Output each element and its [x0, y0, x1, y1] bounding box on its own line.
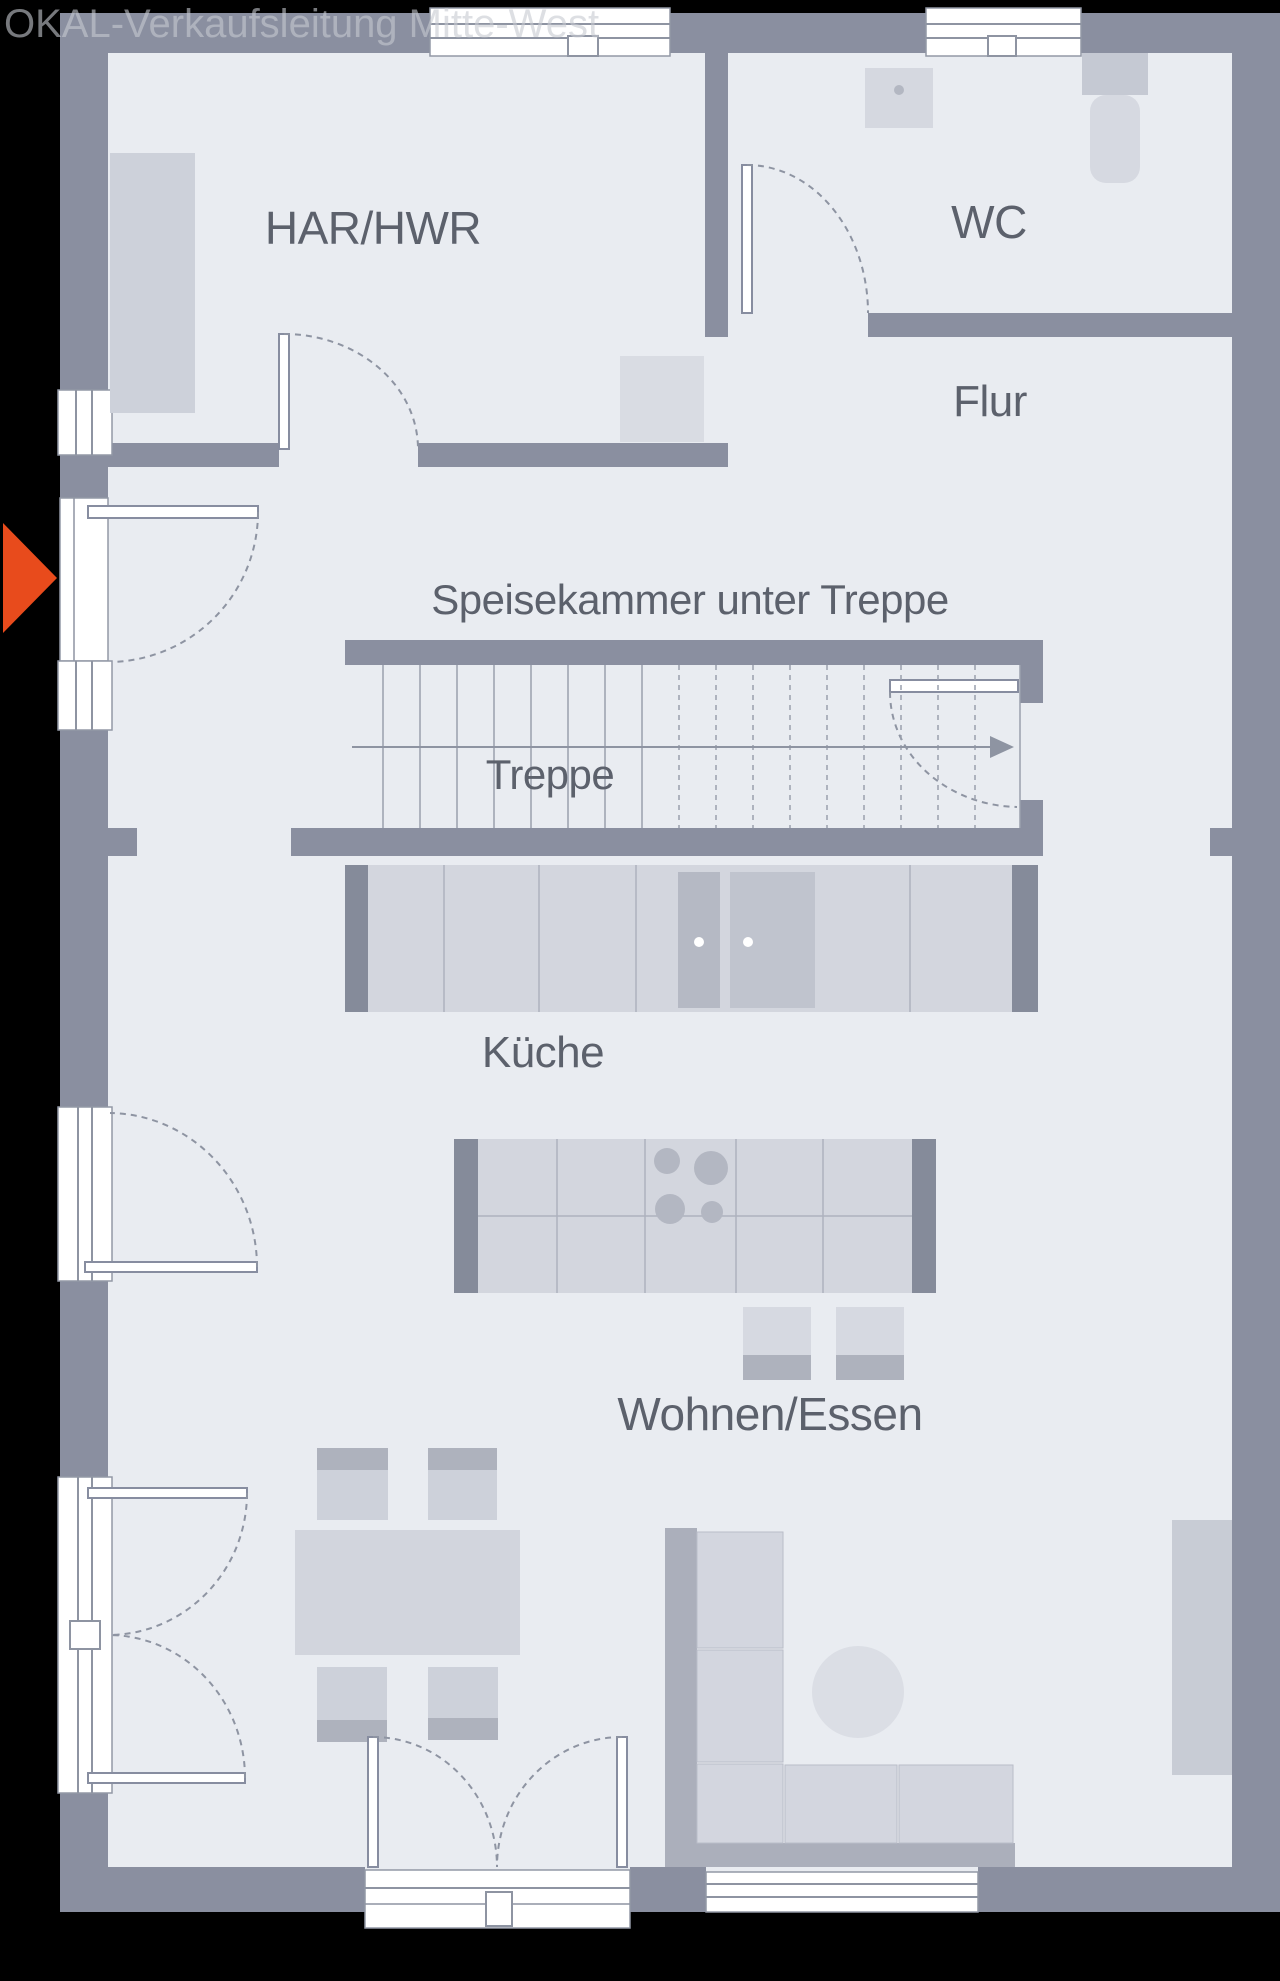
wall-bottom-seg3 — [978, 1867, 1280, 1912]
watermark-text: OKAL-Verkaufsleitung Mitte-West — [4, 2, 599, 47]
door-stair-leaf — [890, 680, 1018, 692]
wall-stair-right-upper — [1020, 665, 1043, 703]
wc-washbasin — [865, 68, 933, 128]
entrance-arrow-icon — [3, 523, 57, 633]
wall-right — [1232, 13, 1280, 1912]
window-left-sidelight — [58, 661, 112, 730]
door-left-double-leaf-top — [88, 1488, 247, 1498]
bar-stool-1 — [743, 1307, 811, 1380]
wall-left-seg4 — [60, 1281, 108, 1477]
dining-chair-bottom-right — [428, 1667, 498, 1740]
entrance-door-leaf — [88, 506, 258, 518]
room-label-kueche: Küche — [482, 1028, 604, 1078]
floor-plan-drawing — [0, 0, 1280, 1981]
window-left-har — [58, 390, 112, 455]
floor-plan-page: HAR/HWR WC Flur Speisekammer unter Trepp… — [0, 0, 1280, 1981]
wc-faucet-icon — [894, 85, 904, 95]
dining-chair-top-left — [317, 1448, 388, 1520]
har-cabinet — [620, 356, 704, 442]
sideboard — [1172, 1520, 1232, 1775]
door-bottom-handle — [486, 1892, 512, 1926]
window-top-wc — [926, 8, 1081, 56]
kitchen-counter-cap-left — [345, 865, 368, 1012]
door-har-leaf — [279, 334, 289, 449]
har-appliance — [110, 153, 195, 413]
wall-bottom-seg2 — [630, 1867, 706, 1912]
bar-stool-2 — [836, 1307, 904, 1380]
wall-stub-right — [1210, 828, 1232, 856]
wall-stair-top — [345, 640, 1043, 665]
door-wc-leaf — [742, 165, 752, 313]
kitchen-counter — [345, 865, 1038, 1012]
kitchen-appliance-fridge — [730, 872, 815, 1008]
wall-left-seg2 — [60, 455, 108, 498]
wall-har-bottom-left — [108, 443, 279, 467]
wall-left-seg1 — [60, 13, 108, 390]
room-label-wc: WC — [951, 195, 1027, 249]
room-label-har-hwr: HAR/HWR — [265, 201, 481, 255]
room-label-flur: Flur — [953, 377, 1027, 427]
dining-table — [295, 1530, 520, 1655]
room-label-treppe: Treppe — [486, 751, 615, 799]
door-bottom-leaf-right — [617, 1737, 627, 1867]
kitchen-counter-cap-right — [1012, 865, 1038, 1012]
wall-left-seg3 — [60, 730, 108, 1107]
door-left-double-handle — [70, 1621, 100, 1649]
wall-bottom-seg1 — [60, 1867, 365, 1912]
dining-chair-bottom-left — [317, 1667, 387, 1742]
wall-har-bottom-right — [418, 443, 728, 467]
door-left-middle-leaf — [85, 1262, 257, 1272]
kitchen-island-cap-left — [454, 1139, 478, 1293]
wall-wc-bottom — [868, 313, 1232, 337]
room-label-wohnen-essen: Wohnen/Essen — [617, 1387, 922, 1441]
wall-stub-left — [104, 828, 137, 856]
side-table-round — [812, 1646, 904, 1738]
wc-toilet — [1082, 53, 1148, 183]
wall-kitchen-top — [291, 828, 1043, 856]
kitchen-island — [454, 1139, 936, 1293]
room-label-speisekammer: Speisekammer unter Treppe — [431, 576, 948, 624]
window-bottom — [706, 1872, 978, 1912]
wall-har-wc-divider — [705, 53, 728, 337]
kitchen-island-cap-right — [912, 1139, 936, 1293]
dining-chair-top-right — [428, 1448, 497, 1520]
sofa-backrest-bottom — [665, 1843, 1015, 1867]
door-bottom-leaf-left — [368, 1737, 378, 1867]
sofa-backrest-left — [665, 1528, 697, 1867]
door-left-double-leaf-bottom — [88, 1773, 245, 1783]
